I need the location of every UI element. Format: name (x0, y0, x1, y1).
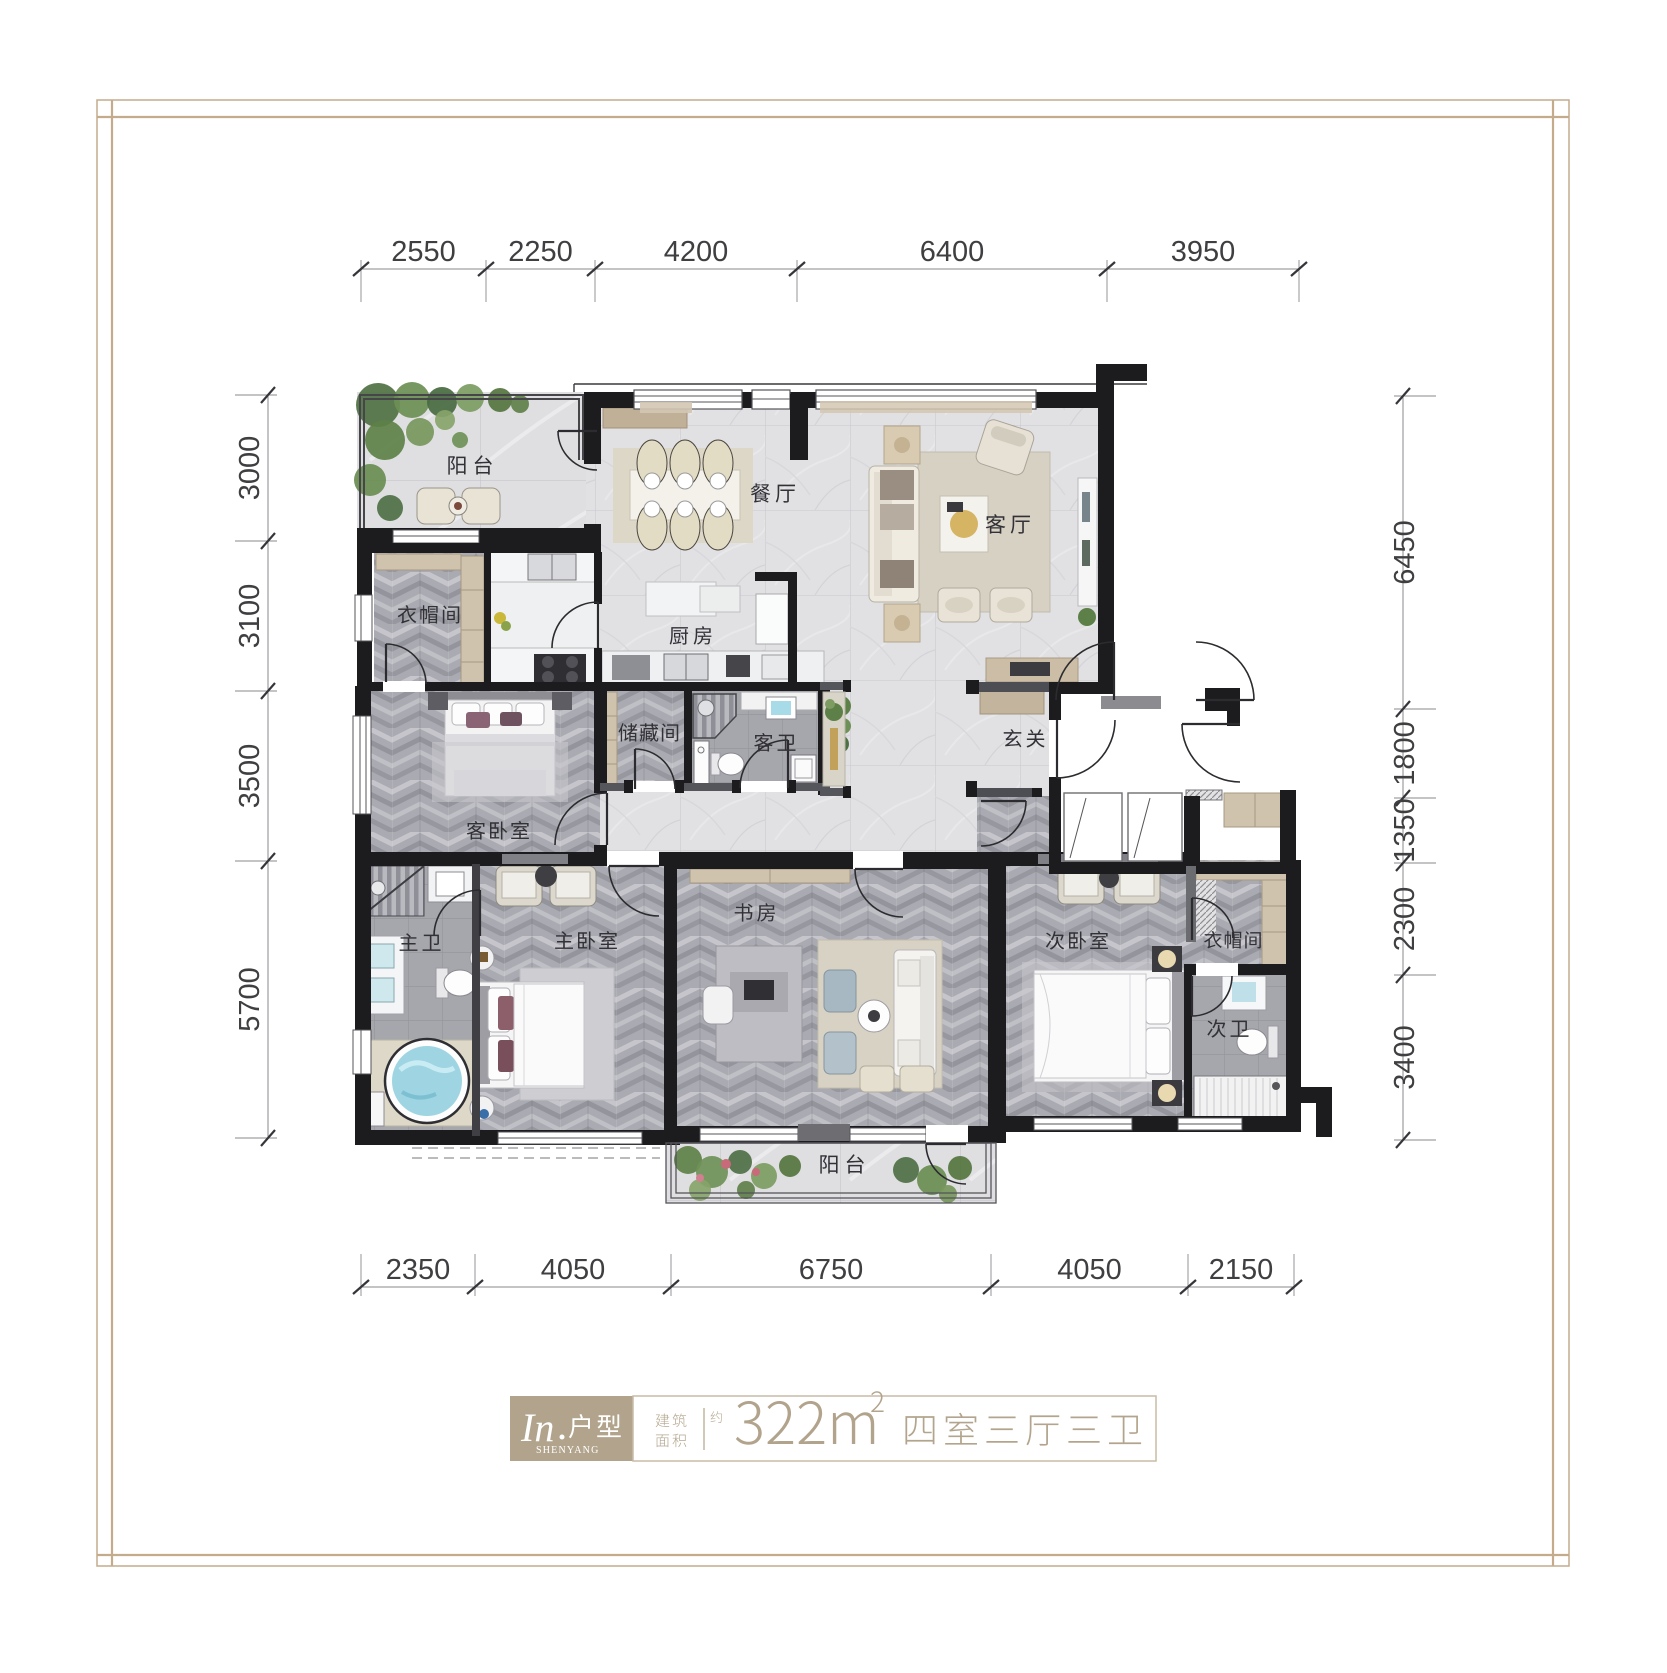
svg-text:3100: 3100 (234, 584, 266, 649)
svg-text:2350: 2350 (386, 1254, 451, 1286)
svg-text:2150: 2150 (1209, 1254, 1274, 1286)
svg-text:4050: 4050 (1057, 1254, 1122, 1286)
svg-text:2300: 2300 (1389, 887, 1421, 952)
svg-text:SHENYANG: SHENYANG (536, 1445, 600, 1456)
svg-text:1350: 1350 (1389, 798, 1421, 863)
svg-text:3400: 3400 (1389, 1025, 1421, 1090)
svg-text:2550: 2550 (391, 236, 456, 268)
svg-text:3950: 3950 (1171, 236, 1236, 268)
svg-text:3000: 3000 (234, 436, 266, 501)
svg-text:4050: 4050 (541, 1254, 606, 1286)
svg-text:6450: 6450 (1389, 520, 1421, 585)
svg-text:1800: 1800 (1389, 721, 1421, 786)
svg-text:3500: 3500 (234, 744, 266, 809)
svg-text:4200: 4200 (664, 236, 729, 268)
svg-text:5700: 5700 (234, 967, 266, 1032)
svg-text:6750: 6750 (799, 1254, 864, 1286)
svg-text:6400: 6400 (920, 236, 985, 268)
svg-text:In: In (520, 1405, 554, 1450)
svg-text:2250: 2250 (508, 236, 573, 268)
